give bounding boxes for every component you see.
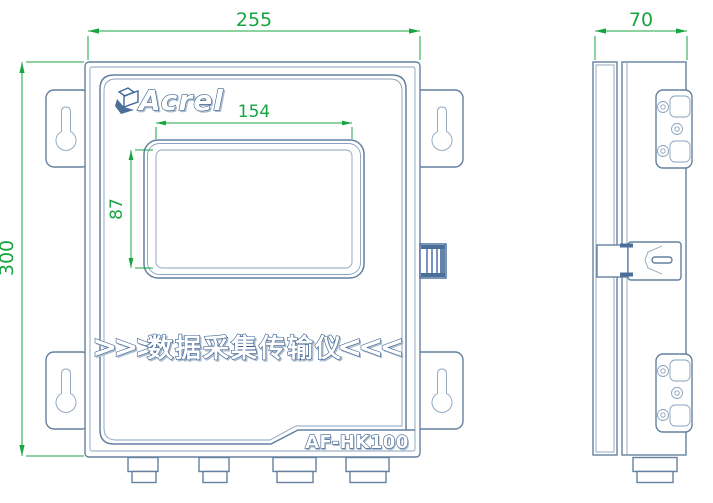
dim-value-screen-height: 87 [107, 198, 127, 220]
dim-value-screen-width: 154 [238, 102, 270, 122]
hinge-plate-bottom [656, 354, 692, 432]
door-latch-side [597, 242, 681, 280]
cable-gland [128, 458, 158, 483]
side-view: 70 [593, 9, 692, 483]
cable-gland-side [633, 458, 677, 483]
acrel-logo-text: Acrel [137, 84, 224, 117]
banner-text: 数据采集传输仪 [147, 333, 343, 364]
dim-value-depth: 70 [629, 9, 653, 31]
dimension-overall-width: 255 [88, 9, 420, 60]
mount-ear-top-left [46, 90, 90, 167]
mount-ear-bottom-left [46, 352, 90, 429]
dim-value-overall-width: 255 [236, 9, 272, 31]
cable-glands-front [128, 458, 389, 483]
door-latch-front [420, 244, 446, 278]
technical-drawing: Acrel Acrel >>> >>> 数据采集传输仪 数据采集传输仪 <<< … [0, 0, 713, 503]
banner-chevrons-right: <<< [337, 330, 401, 365]
cable-gland [273, 458, 316, 483]
cable-gland [199, 458, 229, 483]
front-view: Acrel Acrel >>> >>> 数据采集传输仪 数据采集传输仪 <<< … [0, 9, 463, 483]
dimension-depth: 70 [595, 9, 687, 60]
cable-gland [346, 458, 389, 483]
dim-value-overall-height: 300 [0, 240, 18, 276]
model-label: AF-HK100 [305, 432, 409, 453]
product-banner: >>> >>> 数据采集传输仪 数据采集传输仪 <<< <<< [92, 330, 403, 367]
hinge-plate-top [656, 90, 692, 168]
